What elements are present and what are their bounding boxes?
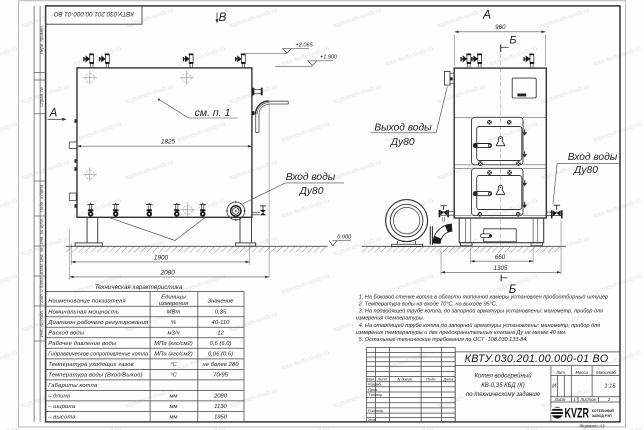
svg-text:N докум.: N докум. bbox=[398, 377, 413, 381]
svg-text:1. На боковой стенке котла в: 1. На боковой стенке котла в области топ… bbox=[359, 293, 608, 300]
svg-text:измерения: измерения bbox=[159, 301, 189, 307]
svg-text:5. Остальные технические треб: 5. Остальные технические требования по О… bbox=[359, 337, 528, 343]
svg-text:Подп. и дата: Подп. и дата bbox=[39, 277, 44, 305]
svg-text:Разраб.: Разраб. bbox=[368, 383, 382, 387]
svg-text:КВТУ.030.201.00.000-01 ВО: КВТУ.030.201.00.000-01 ВО bbox=[465, 353, 609, 365]
svg-text:Подп.: Подп. bbox=[426, 377, 436, 381]
svg-text:Масса: Масса bbox=[576, 370, 589, 375]
svg-text:измерения температуры.: измерения температуры. bbox=[356, 316, 424, 322]
svg-text:Ду80: Ду80 bbox=[390, 137, 415, 148]
svg-text:Номинальная мощность: Номинальная мощность bbox=[48, 310, 119, 316]
svg-text:1: 1 bbox=[573, 397, 575, 402]
svg-text:Наименование показателя: Наименование показателя bbox=[48, 299, 126, 305]
svg-text:Единицы: Единицы bbox=[161, 294, 186, 300]
svg-text:1130: 1130 bbox=[214, 404, 227, 410]
svg-text:Вход воды: Вход воды bbox=[286, 172, 336, 183]
svg-text:Т.контр.: Т.контр. bbox=[368, 393, 383, 397]
svg-text:Изм.: Изм. bbox=[367, 377, 375, 381]
svg-text:Габариты котла: Габариты котла bbox=[48, 383, 98, 389]
svg-text:Вход воды: Вход воды bbox=[568, 152, 618, 163]
svg-text:КОТЕЛЬНЫЙ: КОТЕЛЬНЫЙ bbox=[592, 409, 615, 413]
svg-text:не более 280: не более 280 bbox=[203, 362, 240, 368]
svg-text:°С: °С bbox=[170, 373, 177, 379]
svg-text:Н.контр.: Н.контр. bbox=[368, 409, 384, 413]
svg-text:мм: мм bbox=[169, 404, 177, 410]
svg-text:960: 960 bbox=[495, 24, 506, 31]
svg-text:2. Температура воды на входе: 2. Температура воды на входе 70°С, на вы… bbox=[358, 302, 497, 308]
svg-text:А: А bbox=[49, 108, 58, 120]
svg-text:KVZR: KVZR bbox=[565, 406, 590, 421]
svg-text:Инв. № подл.: Инв. № подл. bbox=[39, 310, 44, 337]
svg-text:Масштаб: Масштаб bbox=[596, 370, 616, 375]
svg-text:Рабочее давление воды: Рабочее давление воды bbox=[48, 341, 117, 347]
svg-text:МПа (кгс/см2): МПа (кгс/см2) bbox=[154, 341, 193, 347]
svg-text:по техническому заданию: по техническому заданию bbox=[466, 392, 541, 398]
svg-text:Ду80: Ду80 bbox=[299, 186, 324, 197]
svg-text:%: % bbox=[171, 320, 176, 326]
svg-text:КВ-0,35 КБД (К): КВ-0,35 КБД (К) bbox=[481, 383, 525, 389]
svg-text:2080: 2080 bbox=[160, 269, 176, 276]
svg-text:Котел водогрейный: Котел водогрейный bbox=[474, 373, 532, 380]
svg-text:Взам. инв. №: Взам. инв. № bbox=[39, 247, 44, 274]
svg-text:+2.065: +2.065 bbox=[296, 42, 314, 48]
svg-text:Расход воды: Расход воды bbox=[48, 331, 85, 337]
svg-text:Диапазон рабочего регулировани: Диапазон рабочего регулирования bbox=[47, 320, 149, 326]
svg-text:– ширина: – ширина bbox=[47, 404, 76, 410]
svg-text:1:15: 1:15 bbox=[604, 384, 616, 390]
svg-text:Справ. №: Справ. № bbox=[39, 87, 44, 107]
svg-text:Температура уходящих газов: Температура уходящих газов bbox=[48, 362, 134, 368]
svg-text:Техническая характеристика: Техническая характеристика bbox=[95, 284, 183, 291]
svg-text:4. На отводящей трубе котла,д: 4. На отводящей трубе котла,до запорной … bbox=[359, 322, 600, 329]
svg-text:ЗАВОД РЭП: ЗАВОД РЭП bbox=[592, 414, 613, 418]
svg-text:0,6 (6,0): 0,6 (6,0) bbox=[210, 341, 232, 347]
svg-text:измерения температуры и два пр: измерения температуры и два предохраните… bbox=[356, 330, 567, 336]
svg-text:+1.900: +1.900 bbox=[320, 55, 338, 61]
svg-text:Лист: Лист bbox=[554, 397, 566, 402]
svg-text:МВт: МВт bbox=[167, 310, 181, 316]
svg-text:0,06 (0,6): 0,06 (0,6) bbox=[208, 352, 233, 358]
svg-text:– высота: – высота bbox=[47, 415, 76, 421]
svg-text:Перв. примен.: Перв. примен. bbox=[39, 25, 44, 54]
svg-text:1825: 1825 bbox=[161, 139, 176, 146]
svg-text:А: А bbox=[482, 7, 491, 21]
svg-text:см. п. 1: см. п. 1 bbox=[195, 107, 231, 119]
svg-text:70/95: 70/95 bbox=[213, 373, 228, 379]
svg-text:Дата: Дата bbox=[442, 377, 453, 381]
svg-text:1305: 1305 bbox=[494, 265, 508, 272]
svg-text:Лит.: Лит. bbox=[555, 370, 566, 375]
svg-text:мм: мм bbox=[169, 394, 177, 400]
svg-text:м3/ч: м3/ч bbox=[168, 331, 180, 337]
svg-text:2080: 2080 bbox=[213, 394, 228, 400]
svg-text:мм: мм bbox=[169, 415, 177, 421]
svg-text:Значение: Значение bbox=[208, 299, 235, 305]
svg-text:МПа (кгс/см2): МПа (кгс/см2) bbox=[154, 352, 193, 358]
svg-text:КВТУ.030.201.00.000-01 ВО: КВТУ.030.201.00.000-01 ВО bbox=[54, 10, 134, 17]
svg-text:1950: 1950 bbox=[214, 415, 228, 421]
svg-text:0.000: 0.000 bbox=[337, 235, 352, 241]
svg-text:Утв.: Утв. bbox=[368, 418, 377, 422]
svg-text:– длина: – длина bbox=[47, 394, 71, 400]
svg-text:Инв. № дубл.: Инв. № дубл. bbox=[39, 217, 44, 244]
svg-text:Пров.: Пров. bbox=[368, 388, 378, 392]
svg-text:Формат А3: Формат А3 bbox=[579, 423, 605, 428]
svg-text:Б: Б bbox=[509, 35, 516, 47]
svg-text:12: 12 bbox=[217, 331, 224, 337]
svg-text:0,35: 0,35 bbox=[215, 310, 227, 316]
svg-text:Выход воды: Выход воды bbox=[374, 123, 432, 134]
svg-text:Подп. и дата: Подп. и дата bbox=[39, 184, 44, 212]
svg-text:Гидравлическое сопротивление к: Гидравлическое сопротивление котла bbox=[48, 352, 149, 358]
svg-text:°С: °С bbox=[170, 362, 177, 368]
svg-text:Температура воды (Вход/Выход): Температура воды (Вход/Выход) bbox=[48, 373, 142, 379]
svg-text:40-110: 40-110 bbox=[212, 320, 231, 326]
svg-text:3. На подводящей трубе котла,: 3. На подводящей трубе котла, до запорно… bbox=[359, 308, 603, 315]
svg-text:В: В bbox=[219, 12, 227, 24]
svg-text:Листов: Листов bbox=[579, 397, 596, 402]
svg-text:660: 660 bbox=[495, 254, 506, 261]
svg-text:1900: 1900 bbox=[154, 255, 169, 262]
svg-text:Ду80: Ду80 bbox=[573, 165, 598, 176]
svg-text:Лист: Лист bbox=[377, 377, 388, 381]
